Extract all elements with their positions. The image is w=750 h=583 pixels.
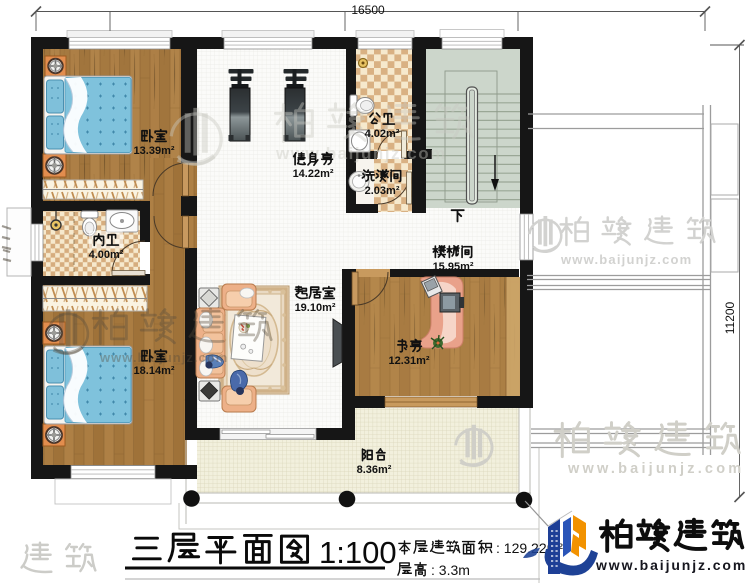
svg-text:18.14m²: 18.14m² (134, 365, 175, 377)
svg-text:8.36m²: 8.36m² (357, 464, 392, 476)
svg-text:1:100: 1:100 (319, 535, 397, 570)
svg-text:4.00m²: 4.00m² (89, 249, 124, 261)
svg-text:15.95m²: 15.95m² (433, 261, 474, 273)
svg-text:16500: 16500 (351, 3, 385, 17)
svg-text:13.39m²: 13.39m² (134, 145, 175, 157)
svg-text:14.22m²: 14.22m² (293, 168, 334, 180)
svg-text:2.03m²: 2.03m² (365, 185, 400, 197)
svg-text:www.baijunjz.com: www.baijunjz.com (560, 252, 692, 267)
svg-text:: 3.3m: : 3.3m (431, 562, 470, 578)
svg-text:4.02m²: 4.02m² (365, 128, 400, 140)
svg-text:www.baijunjz.com: www.baijunjz.com (595, 557, 747, 573)
svg-text:www.baijunjz.com: www.baijunjz.com (99, 350, 228, 365)
svg-text:www.baijunjz.com: www.baijunjz.com (567, 461, 744, 477)
svg-text:19.10m²: 19.10m² (295, 302, 336, 314)
svg-text:11200: 11200 (723, 301, 737, 334)
svg-text:12.31m²: 12.31m² (389, 355, 430, 367)
